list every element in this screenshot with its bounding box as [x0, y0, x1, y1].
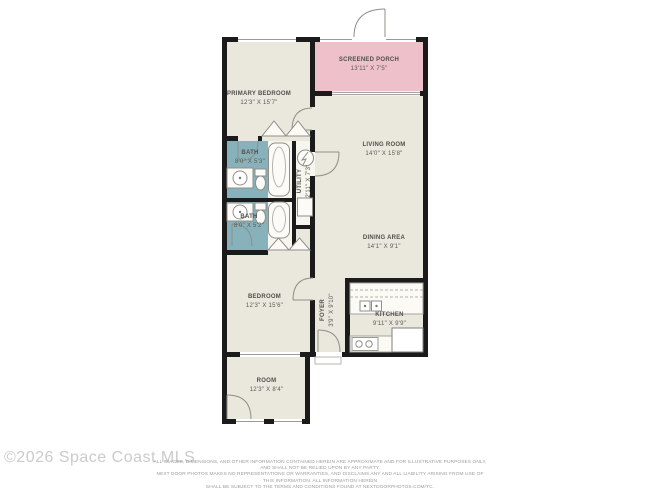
disclaimer: ALL IMAGES, DIMENSIONS, AND OTHER INFORM… — [153, 460, 487, 488]
room-label-room: ROOM 12'3" X 8'4" — [214, 377, 319, 395]
room-label-bath-primary: BATH 8'0" X 5'3" — [219, 149, 281, 167]
room-name: ROOM — [214, 377, 319, 386]
disclaimer-line: ALL IMAGES, DIMENSIONS, AND OTHER INFORM… — [153, 460, 487, 472]
room-dims: 2'11" X 7'3" — [305, 141, 314, 221]
room-name: BATH — [219, 149, 281, 158]
door-opening — [316, 352, 342, 357]
wall — [258, 136, 262, 141]
disclaimer-line: NEXT DOOR PHOTOS MAKES NO REPRESENTATION… — [153, 472, 487, 484]
room-name: DINING AREA — [334, 234, 434, 243]
sink-drain — [239, 177, 241, 179]
room-label-bedroom: BEDROOM 12'3" X 15'6" — [212, 293, 317, 311]
wall — [345, 278, 428, 283]
room-label-bath-second: BATH 8'0" X 5'2" — [218, 213, 280, 231]
wall — [222, 250, 268, 255]
entry-landing — [315, 357, 341, 364]
room-label-dining-area: DINING AREA 14'1" X 9'1" — [334, 234, 434, 252]
room-dims: 12'3" X 15'6" — [212, 302, 317, 311]
toilet-icon — [256, 176, 266, 190]
room-label-living-room: LIVING ROOM 14'0" X 15'8" — [334, 141, 434, 159]
door-arc-porch — [354, 9, 385, 37]
room-label-utility: UTILITY 2'11" X 7'3" — [296, 141, 314, 221]
room-label-kitchen: KITCHEN 9'11" X 9'9" — [337, 311, 442, 329]
sink-drain — [364, 305, 366, 307]
room-dims: 14'0" X 15'8" — [334, 150, 434, 159]
wall — [222, 198, 296, 202]
room-label-screened-porch: SCREENED PORCH 13'11" X 7'5" — [314, 56, 424, 74]
room-name: SCREENED PORCH — [314, 56, 424, 65]
toilet-tank — [255, 203, 266, 210]
room-name: UTILITY — [296, 141, 305, 221]
room-dims: 13'11" X 7'5" — [314, 65, 424, 74]
room-name: KITCHEN — [337, 311, 442, 320]
door-opening — [352, 37, 386, 42]
sliding-door — [332, 91, 420, 96]
room-dims: 9'11" X 9'9" — [337, 320, 442, 329]
room-dims: 3'9" X 9'10" — [328, 270, 337, 350]
room-dims: 12'3" X 8'4" — [214, 386, 319, 395]
wall — [423, 37, 428, 357]
room-name: BEDROOM — [212, 293, 317, 302]
room-dims: 14'1" X 9'1" — [334, 243, 434, 252]
room-label-primary-bedroom: PRIMARY BEDROOM 12'3" X 15'7" — [204, 90, 314, 108]
room-dims: 12'3" X 15'7" — [204, 99, 314, 108]
room-name: BATH — [218, 213, 280, 222]
room-name: PRIMARY BEDROOM — [204, 90, 314, 99]
sink-drain — [375, 305, 377, 307]
room-name: LIVING ROOM — [334, 141, 434, 150]
wall — [222, 136, 238, 141]
room-name: FOYER — [319, 270, 328, 350]
room-label-foyer: FOYER 3'9" X 9'10" — [319, 270, 337, 350]
refrigerator-icon — [392, 328, 423, 352]
floor-plan-page: PRIMARY BEDROOM 12'3" X 15'7" SCREENED P… — [0, 0, 650, 488]
wall — [296, 225, 315, 229]
toilet-tank — [255, 169, 266, 176]
room-dims: 8'0" X 5'3" — [219, 158, 281, 167]
room-dims: 8'0" X 5'2" — [218, 222, 280, 231]
